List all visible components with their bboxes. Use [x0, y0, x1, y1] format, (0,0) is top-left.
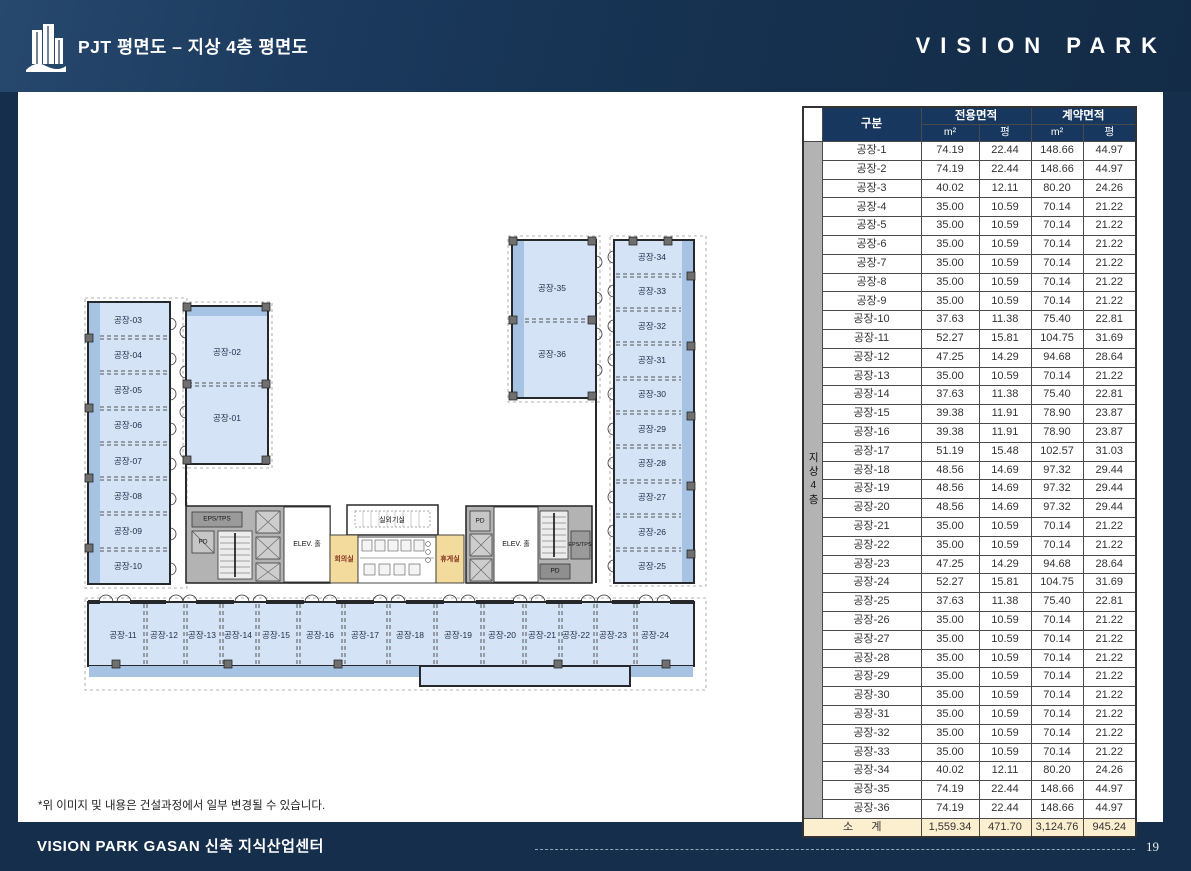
table-row: 공장-3035.0010.5970.1421.22 — [803, 687, 1136, 706]
area-value-cell: 21.22 — [1083, 705, 1136, 724]
area-value-cell: 31.69 — [1083, 574, 1136, 593]
area-value-cell: 10.59 — [979, 217, 1031, 236]
area-value-cell: 37.63 — [921, 311, 979, 330]
core-label: PD — [475, 518, 484, 525]
area-value-cell: 70.14 — [1031, 536, 1083, 555]
area-value-cell: 75.40 — [1031, 593, 1083, 612]
area-value-cell: 97.32 — [1031, 499, 1083, 518]
area-value-cell: 48.56 — [921, 480, 979, 499]
area-value-cell: 10.59 — [979, 292, 1031, 311]
unit-name-cell: 공장-30 — [822, 687, 921, 706]
area-value-cell: 11.38 — [979, 311, 1031, 330]
area-value-cell: 21.22 — [1083, 724, 1136, 743]
room-label: 공장-07 — [114, 455, 142, 467]
table-row: 공장-274.1922.44148.6644.97 — [803, 160, 1136, 179]
slide-header: PJT 평면도 – 지상 4층 평면도 VISION PARK — [0, 0, 1191, 92]
unit-name-cell: 공장-18 — [822, 461, 921, 480]
area-value-cell: 15.48 — [979, 442, 1031, 461]
table-row: 공장-435.0010.5970.1421.22 — [803, 198, 1136, 217]
unit-name-cell: 공장-26 — [822, 611, 921, 630]
area-value-cell: 70.14 — [1031, 254, 1083, 273]
subtotal-value-cell: 3,124.76 — [1031, 818, 1083, 837]
area-value-cell: 39.38 — [921, 405, 979, 424]
core-label: ELEV. 홀 — [293, 539, 321, 549]
subtotal-value-cell: 1,559.34 — [921, 818, 979, 837]
table-row: 공장-3574.1922.44148.6644.97 — [803, 781, 1136, 800]
area-value-cell: 148.66 — [1031, 160, 1083, 179]
area-value-cell: 70.14 — [1031, 705, 1083, 724]
unit-name-cell: 공장-21 — [822, 517, 921, 536]
core-label: 회의실 — [334, 554, 353, 564]
area-value-cell: 94.68 — [1031, 555, 1083, 574]
area-value-cell: 74.19 — [921, 142, 979, 161]
area-table: 구분 전용면적 계약면적 m² 평 m² 평 지상4층공장-174.1922.4… — [802, 106, 1137, 838]
area-value-cell: 22.44 — [979, 142, 1031, 161]
area-value-cell: 35.00 — [921, 611, 979, 630]
area-value-cell: 14.69 — [979, 461, 1031, 480]
area-value-cell: 70.14 — [1031, 235, 1083, 254]
footer-divider-line — [535, 849, 1135, 850]
floor-band-label: 지상4층 — [807, 452, 818, 508]
area-value-cell: 29.44 — [1083, 499, 1136, 518]
table-row: 공장-2835.0010.5970.1421.22 — [803, 649, 1136, 668]
area-value-cell: 21.22 — [1083, 235, 1136, 254]
area-value-cell: 14.29 — [979, 555, 1031, 574]
table-row: 공장-1639.3811.9178.9023.87 — [803, 423, 1136, 442]
area-value-cell: 22.44 — [979, 160, 1031, 179]
area-value-cell: 28.64 — [1083, 555, 1136, 574]
area-value-cell: 48.56 — [921, 499, 979, 518]
col-header-contract: 계약면적 — [1031, 107, 1136, 125]
area-value-cell: 28.64 — [1083, 348, 1136, 367]
table-row: 지상4층공장-174.1922.44148.6644.97 — [803, 142, 1136, 161]
unit-name-cell: 공장-31 — [822, 705, 921, 724]
area-value-cell: 35.00 — [921, 273, 979, 292]
area-value-cell: 22.81 — [1083, 593, 1136, 612]
area-value-cell: 75.40 — [1031, 386, 1083, 405]
area-value-cell: 35.00 — [921, 743, 979, 762]
area-value-cell: 10.59 — [979, 649, 1031, 668]
area-value-cell: 47.25 — [921, 555, 979, 574]
area-value-cell: 21.22 — [1083, 611, 1136, 630]
room-label: 공장-19 — [444, 629, 472, 641]
content-area: 공장-03공장-04공장-05공장-06공장-07공장-08공장-09공장-10… — [18, 92, 1163, 822]
area-value-cell: 35.00 — [921, 649, 979, 668]
area-value-cell: 24.26 — [1083, 179, 1136, 198]
area-value-cell: 40.02 — [921, 179, 979, 198]
room-label: 공장-06 — [114, 419, 142, 431]
room-label: 공장-09 — [114, 525, 142, 537]
table-row: 공장-1539.3811.9178.9023.87 — [803, 405, 1136, 424]
room-label: 공장-08 — [114, 490, 142, 502]
area-value-cell: 37.63 — [921, 593, 979, 612]
core-label: 휴게실 — [440, 554, 459, 564]
area-value-cell: 35.00 — [921, 198, 979, 217]
area-value-cell: 11.91 — [979, 423, 1031, 442]
page-title: PJT 평면도 – 지상 4층 평면도 — [78, 34, 308, 59]
room-label: 공장-16 — [306, 629, 334, 641]
area-value-cell: 70.14 — [1031, 743, 1083, 762]
table-row: 공장-1437.6311.3875.4022.81 — [803, 386, 1136, 405]
unit-name-cell: 공장-9 — [822, 292, 921, 311]
room-label: 공장-12 — [150, 629, 178, 641]
area-value-cell: 51.19 — [921, 442, 979, 461]
area-value-cell: 70.14 — [1031, 687, 1083, 706]
area-value-cell: 23.87 — [1083, 405, 1136, 424]
area-value-cell: 35.00 — [921, 668, 979, 687]
area-value-cell: 10.59 — [979, 198, 1031, 217]
unit-name-cell: 공장-19 — [822, 480, 921, 499]
area-value-cell: 22.81 — [1083, 311, 1136, 330]
footer-project-title: VISION PARK GASAN 신축 지식산업센터 — [37, 835, 324, 856]
room-label: 공장-04 — [114, 349, 142, 361]
area-value-cell: 12.11 — [979, 762, 1031, 781]
area-value-cell: 10.59 — [979, 235, 1031, 254]
area-value-cell: 70.14 — [1031, 273, 1083, 292]
table-row: 공장-3235.0010.5970.1421.22 — [803, 724, 1136, 743]
area-value-cell: 94.68 — [1031, 348, 1083, 367]
area-value-cell: 10.59 — [979, 517, 1031, 536]
area-value-cell: 22.81 — [1083, 386, 1136, 405]
area-value-cell: 97.32 — [1031, 461, 1083, 480]
unit-name-cell: 공장-15 — [822, 405, 921, 424]
area-value-cell: 15.81 — [979, 574, 1031, 593]
area-value-cell: 52.27 — [921, 574, 979, 593]
area-value-cell: 74.19 — [921, 160, 979, 179]
core-label: EPS/TPS — [203, 516, 230, 523]
col-header-exclusive: 전용면적 — [921, 107, 1031, 125]
room-label: 공장-36 — [538, 348, 566, 360]
area-value-cell: 78.90 — [1031, 405, 1083, 424]
room-label: 공장-13 — [188, 629, 216, 641]
area-value-cell: 74.19 — [921, 781, 979, 800]
table-row: 공장-1848.5614.6997.3229.44 — [803, 461, 1136, 480]
table-corner-cell — [803, 107, 822, 142]
table-row: 공장-2347.2514.2994.6828.64 — [803, 555, 1136, 574]
unit-name-cell: 공장-16 — [822, 423, 921, 442]
area-value-cell: 80.20 — [1031, 762, 1083, 781]
area-value-cell: 11.38 — [979, 386, 1031, 405]
table-row: 공장-3674.1922.44148.6644.97 — [803, 799, 1136, 818]
area-value-cell: 31.03 — [1083, 442, 1136, 461]
subtotal-label-cell: 소 계 — [803, 818, 921, 837]
area-value-cell: 70.14 — [1031, 217, 1083, 236]
col-header-pyeong-contract: 평 — [1083, 125, 1136, 142]
unit-name-cell: 공장-6 — [822, 235, 921, 254]
room-label: 공장-18 — [396, 629, 424, 641]
unit-name-cell: 공장-11 — [822, 329, 921, 348]
unit-name-cell: 공장-20 — [822, 499, 921, 518]
unit-name-cell: 공장-23 — [822, 555, 921, 574]
room-label: 공장-20 — [488, 629, 516, 641]
area-value-cell: 15.81 — [979, 329, 1031, 348]
table-row: 공장-2537.6311.3875.4022.81 — [803, 593, 1136, 612]
room-label: 공장-22 — [562, 629, 590, 641]
room-label: 공장-30 — [638, 388, 666, 400]
room-label: 공장-31 — [638, 354, 666, 366]
area-value-cell: 35.00 — [921, 705, 979, 724]
room-label: 공장-21 — [528, 629, 556, 641]
area-value-cell: 148.66 — [1031, 799, 1083, 818]
floor-plan: 공장-03공장-04공장-05공장-06공장-07공장-08공장-09공장-10… — [84, 232, 708, 692]
table-row: 공장-1152.2715.81104.7531.69 — [803, 329, 1136, 348]
area-value-cell: 70.14 — [1031, 724, 1083, 743]
unit-name-cell: 공장-1 — [822, 142, 921, 161]
table-row: 공장-635.0010.5970.1421.22 — [803, 235, 1136, 254]
area-value-cell: 12.11 — [979, 179, 1031, 198]
table-row: 공장-1751.1915.48102.5731.03 — [803, 442, 1136, 461]
area-value-cell: 21.22 — [1083, 536, 1136, 555]
area-table-body: 지상4층공장-174.1922.44148.6644.97공장-274.1922… — [803, 142, 1136, 838]
area-value-cell: 10.59 — [979, 705, 1031, 724]
brand-wordmark: VISION PARK — [916, 33, 1167, 59]
room-label: 공장-35 — [538, 282, 566, 294]
table-row: 공장-2048.5614.6997.3229.44 — [803, 499, 1136, 518]
area-value-cell: 22.44 — [979, 799, 1031, 818]
area-value-cell: 21.22 — [1083, 630, 1136, 649]
unit-name-cell: 공장-28 — [822, 649, 921, 668]
area-value-cell: 21.22 — [1083, 198, 1136, 217]
area-value-cell: 21.22 — [1083, 367, 1136, 386]
area-value-cell: 29.44 — [1083, 480, 1136, 499]
unit-name-cell: 공장-12 — [822, 348, 921, 367]
area-value-cell: 70.14 — [1031, 367, 1083, 386]
subtotal-value-cell: 471.70 — [979, 818, 1031, 837]
area-value-cell: 35.00 — [921, 687, 979, 706]
unit-name-cell: 공장-27 — [822, 630, 921, 649]
area-value-cell: 10.59 — [979, 743, 1031, 762]
unit-name-cell: 공장-22 — [822, 536, 921, 555]
page-number: 19 — [1146, 839, 1159, 855]
area-value-cell: 14.69 — [979, 480, 1031, 499]
room-label: 공장-23 — [599, 629, 627, 641]
area-value-cell: 70.14 — [1031, 198, 1083, 217]
area-value-cell: 35.00 — [921, 254, 979, 273]
unit-name-cell: 공장-7 — [822, 254, 921, 273]
table-row: 공장-2735.0010.5970.1421.22 — [803, 630, 1136, 649]
table-row: 공장-735.0010.5970.1421.22 — [803, 254, 1136, 273]
subtotal-value-cell: 945.24 — [1083, 818, 1136, 837]
area-value-cell: 10.59 — [979, 630, 1031, 649]
room-label: 공장-29 — [638, 423, 666, 435]
area-value-cell: 10.59 — [979, 367, 1031, 386]
area-value-cell: 10.59 — [979, 668, 1031, 687]
table-row: 공장-1948.5614.6997.3229.44 — [803, 480, 1136, 499]
area-value-cell: 102.57 — [1031, 442, 1083, 461]
table-row: 공장-835.0010.5970.1421.22 — [803, 273, 1136, 292]
col-header-category: 구분 — [822, 107, 921, 142]
unit-name-cell: 공장-25 — [822, 593, 921, 612]
area-value-cell: 11.38 — [979, 593, 1031, 612]
area-value-cell: 74.19 — [921, 799, 979, 818]
area-value-cell: 21.22 — [1083, 668, 1136, 687]
area-value-cell: 44.97 — [1083, 160, 1136, 179]
unit-name-cell: 공장-2 — [822, 160, 921, 179]
area-value-cell: 10.59 — [979, 724, 1031, 743]
table-row: 공장-2935.0010.5970.1421.22 — [803, 668, 1136, 687]
room-label: 공장-15 — [262, 629, 290, 641]
table-row: 공장-3335.0010.5970.1421.22 — [803, 743, 1136, 762]
table-row: 공장-2452.2715.81104.7531.69 — [803, 574, 1136, 593]
area-value-cell: 21.22 — [1083, 273, 1136, 292]
table-row: 공장-1335.0010.5970.1421.22 — [803, 367, 1136, 386]
area-value-cell: 31.69 — [1083, 329, 1136, 348]
area-value-cell: 70.14 — [1031, 517, 1083, 536]
unit-name-cell: 공장-36 — [822, 799, 921, 818]
room-label: 공장-26 — [638, 526, 666, 538]
room-label: 공장-17 — [351, 629, 379, 641]
area-value-cell: 70.14 — [1031, 611, 1083, 630]
area-value-cell: 35.00 — [921, 724, 979, 743]
area-value-cell: 44.97 — [1083, 142, 1136, 161]
area-value-cell: 39.38 — [921, 423, 979, 442]
room-label: 공장-24 — [641, 629, 669, 641]
area-value-cell: 70.14 — [1031, 668, 1083, 687]
area-value-cell: 35.00 — [921, 235, 979, 254]
area-value-cell: 14.29 — [979, 348, 1031, 367]
unit-name-cell: 공장-32 — [822, 724, 921, 743]
area-value-cell: 14.69 — [979, 499, 1031, 518]
area-value-cell: 11.91 — [979, 405, 1031, 424]
area-value-cell: 21.22 — [1083, 649, 1136, 668]
room-label: 공장-34 — [638, 251, 666, 263]
area-value-cell: 10.59 — [979, 273, 1031, 292]
area-value-cell: 35.00 — [921, 367, 979, 386]
subtotal-row: 소 계1,559.34471.703,124.76945.24 — [803, 818, 1136, 837]
core-label: 실외기실 — [379, 515, 405, 525]
room-label: 공장-14 — [224, 629, 252, 641]
area-value-cell: 35.00 — [921, 292, 979, 311]
room-label: 공장-05 — [114, 384, 142, 396]
table-row: 공장-1037.6311.3875.4022.81 — [803, 311, 1136, 330]
core-label: EPS/TPS — [568, 542, 591, 548]
area-value-cell: 148.66 — [1031, 142, 1083, 161]
core-label: ELEV. 홀 — [502, 539, 530, 549]
area-value-cell: 21.22 — [1083, 687, 1136, 706]
unit-name-cell: 공장-3 — [822, 179, 921, 198]
area-value-cell: 21.22 — [1083, 217, 1136, 236]
col-header-pyeong-exclusive: 평 — [979, 125, 1031, 142]
floor-band-cell: 지상4층 — [803, 142, 822, 819]
table-row: 공장-2635.0010.5970.1421.22 — [803, 611, 1136, 630]
area-value-cell: 148.66 — [1031, 781, 1083, 800]
area-value-cell: 44.97 — [1083, 781, 1136, 800]
area-value-cell: 10.59 — [979, 687, 1031, 706]
core-label: PD — [550, 568, 559, 575]
area-value-cell: 80.20 — [1031, 179, 1083, 198]
col-header-m2-exclusive: m² — [921, 125, 979, 142]
room-label: 공장-03 — [114, 314, 142, 326]
table-row: 공장-1247.2514.2994.6828.64 — [803, 348, 1136, 367]
unit-name-cell: 공장-34 — [822, 762, 921, 781]
room-label: 공장-27 — [638, 491, 666, 503]
room-label: 공장-28 — [638, 457, 666, 469]
area-value-cell: 52.27 — [921, 329, 979, 348]
table-row: 공장-935.0010.5970.1421.22 — [803, 292, 1136, 311]
area-value-cell: 29.44 — [1083, 461, 1136, 480]
room-label: 공장-11 — [109, 629, 136, 641]
unit-name-cell: 공장-35 — [822, 781, 921, 800]
area-value-cell: 21.22 — [1083, 743, 1136, 762]
slide: PJT 평면도 – 지상 4층 평면도 VISION PARK — [0, 0, 1191, 871]
area-value-cell: 75.40 — [1031, 311, 1083, 330]
table-row: 공장-3440.0212.1180.2024.26 — [803, 762, 1136, 781]
table-row: 공장-3135.0010.5970.1421.22 — [803, 705, 1136, 724]
area-value-cell: 37.63 — [921, 386, 979, 405]
room-label: 공장-25 — [638, 560, 666, 572]
unit-name-cell: 공장-10 — [822, 311, 921, 330]
area-value-cell: 35.00 — [921, 630, 979, 649]
area-value-cell: 35.00 — [921, 517, 979, 536]
area-value-cell: 40.02 — [921, 762, 979, 781]
unit-name-cell: 공장-14 — [822, 386, 921, 405]
area-value-cell: 70.14 — [1031, 292, 1083, 311]
table-row: 공장-340.0212.1180.2024.26 — [803, 179, 1136, 198]
table-row: 공장-2135.0010.5970.1421.22 — [803, 517, 1136, 536]
unit-name-cell: 공장-13 — [822, 367, 921, 386]
area-value-cell: 70.14 — [1031, 630, 1083, 649]
unit-name-cell: 공장-17 — [822, 442, 921, 461]
table-row: 공장-535.0010.5970.1421.22 — [803, 217, 1136, 236]
area-value-cell: 47.25 — [921, 348, 979, 367]
plan-labels: 공장-03공장-04공장-05공장-06공장-07공장-08공장-09공장-10… — [84, 232, 708, 692]
area-value-cell: 21.22 — [1083, 292, 1136, 311]
area-value-cell: 78.90 — [1031, 423, 1083, 442]
unit-name-cell: 공장-33 — [822, 743, 921, 762]
col-header-m2-contract: m² — [1031, 125, 1083, 142]
area-value-cell: 21.22 — [1083, 254, 1136, 273]
area-value-cell: 35.00 — [921, 217, 979, 236]
unit-name-cell: 공장-29 — [822, 668, 921, 687]
room-label: 공장-10 — [114, 560, 142, 572]
core-label: PD — [198, 539, 207, 546]
room-label: 공장-02 — [213, 346, 241, 358]
unit-name-cell: 공장-8 — [822, 273, 921, 292]
area-value-cell: 104.75 — [1031, 329, 1083, 348]
unit-name-cell: 공장-24 — [822, 574, 921, 593]
area-value-cell: 70.14 — [1031, 649, 1083, 668]
area-value-cell: 24.26 — [1083, 762, 1136, 781]
area-value-cell: 10.59 — [979, 611, 1031, 630]
area-value-cell: 44.97 — [1083, 799, 1136, 818]
unit-name-cell: 공장-5 — [822, 217, 921, 236]
area-value-cell: 97.32 — [1031, 480, 1083, 499]
area-value-cell: 23.87 — [1083, 423, 1136, 442]
room-label: 공장-01 — [213, 412, 241, 424]
area-value-cell: 10.59 — [979, 536, 1031, 555]
area-value-cell: 48.56 — [921, 461, 979, 480]
area-value-cell: 35.00 — [921, 536, 979, 555]
area-table-grid: 구분 전용면적 계약면적 m² 평 m² 평 지상4층공장-174.1922.4… — [802, 106, 1137, 838]
disclaimer-note: *위 이미지 및 내용은 건설과정에서 일부 변경될 수 있습니다. — [38, 797, 325, 813]
unit-name-cell: 공장-4 — [822, 198, 921, 217]
area-value-cell: 21.22 — [1083, 517, 1136, 536]
area-value-cell: 104.75 — [1031, 574, 1083, 593]
room-label: 공장-33 — [638, 285, 666, 297]
area-value-cell: 10.59 — [979, 254, 1031, 273]
area-value-cell: 22.44 — [979, 781, 1031, 800]
room-label: 공장-32 — [638, 320, 666, 332]
buildings-logo-icon — [26, 22, 66, 72]
table-row: 공장-2235.0010.5970.1421.22 — [803, 536, 1136, 555]
